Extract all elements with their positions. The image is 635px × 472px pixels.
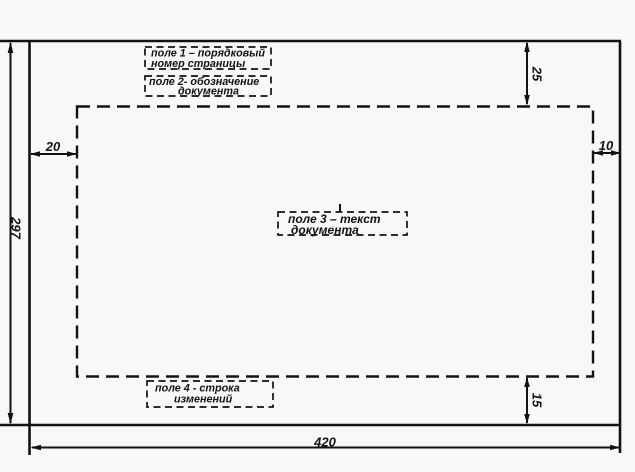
svg-text:изменений: изменений xyxy=(174,394,233,406)
svg-text:25: 25 xyxy=(530,66,545,82)
svg-text:20: 20 xyxy=(45,139,61,154)
svg-text:документа: документа xyxy=(291,223,359,237)
svg-text:15: 15 xyxy=(530,393,545,408)
svg-text:номер страницы: номер страницы xyxy=(151,58,246,70)
svg-text:документа: документа xyxy=(178,86,239,98)
svg-text:297: 297 xyxy=(9,216,24,239)
svg-text:420: 420 xyxy=(313,435,336,450)
svg-text:10: 10 xyxy=(599,138,614,153)
